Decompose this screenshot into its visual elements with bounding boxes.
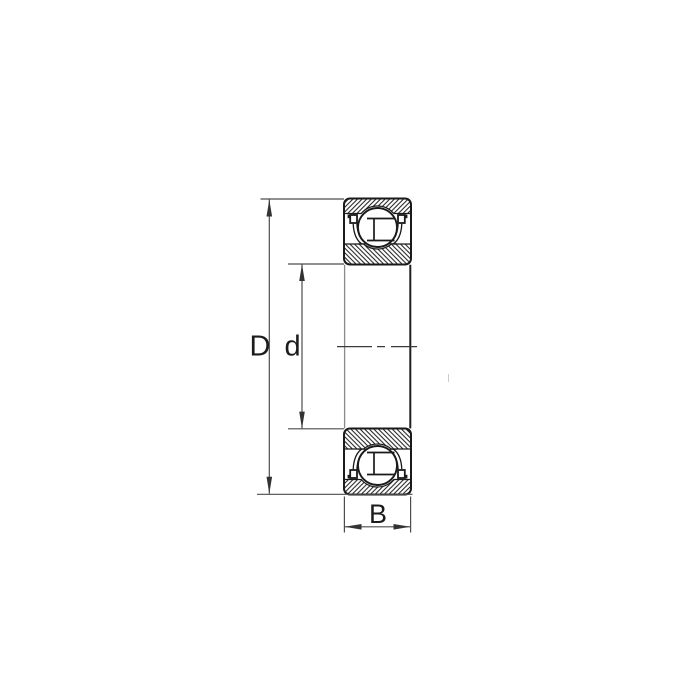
dimension-d-label: d [285, 331, 301, 363]
arrowhead-left-icon [345, 524, 362, 530]
bearing-bottom-section [344, 429, 411, 495]
dimension-B-label: B [369, 499, 387, 529]
arrowhead-down-icon [299, 412, 305, 429]
bearing-cross-section-drawing: D d B [0, 0, 700, 700]
dimension-D-label: D [250, 331, 271, 363]
drawing-canvas: D d B [0, 0, 700, 700]
arrowhead-down-icon [267, 477, 273, 494]
arrowhead-up-icon [267, 200, 273, 217]
arrowhead-up-icon [299, 264, 305, 281]
ball-top [358, 208, 397, 247]
arrowhead-right-icon [394, 524, 411, 530]
ball-bottom [358, 446, 397, 485]
bearing-top-section [344, 199, 411, 265]
